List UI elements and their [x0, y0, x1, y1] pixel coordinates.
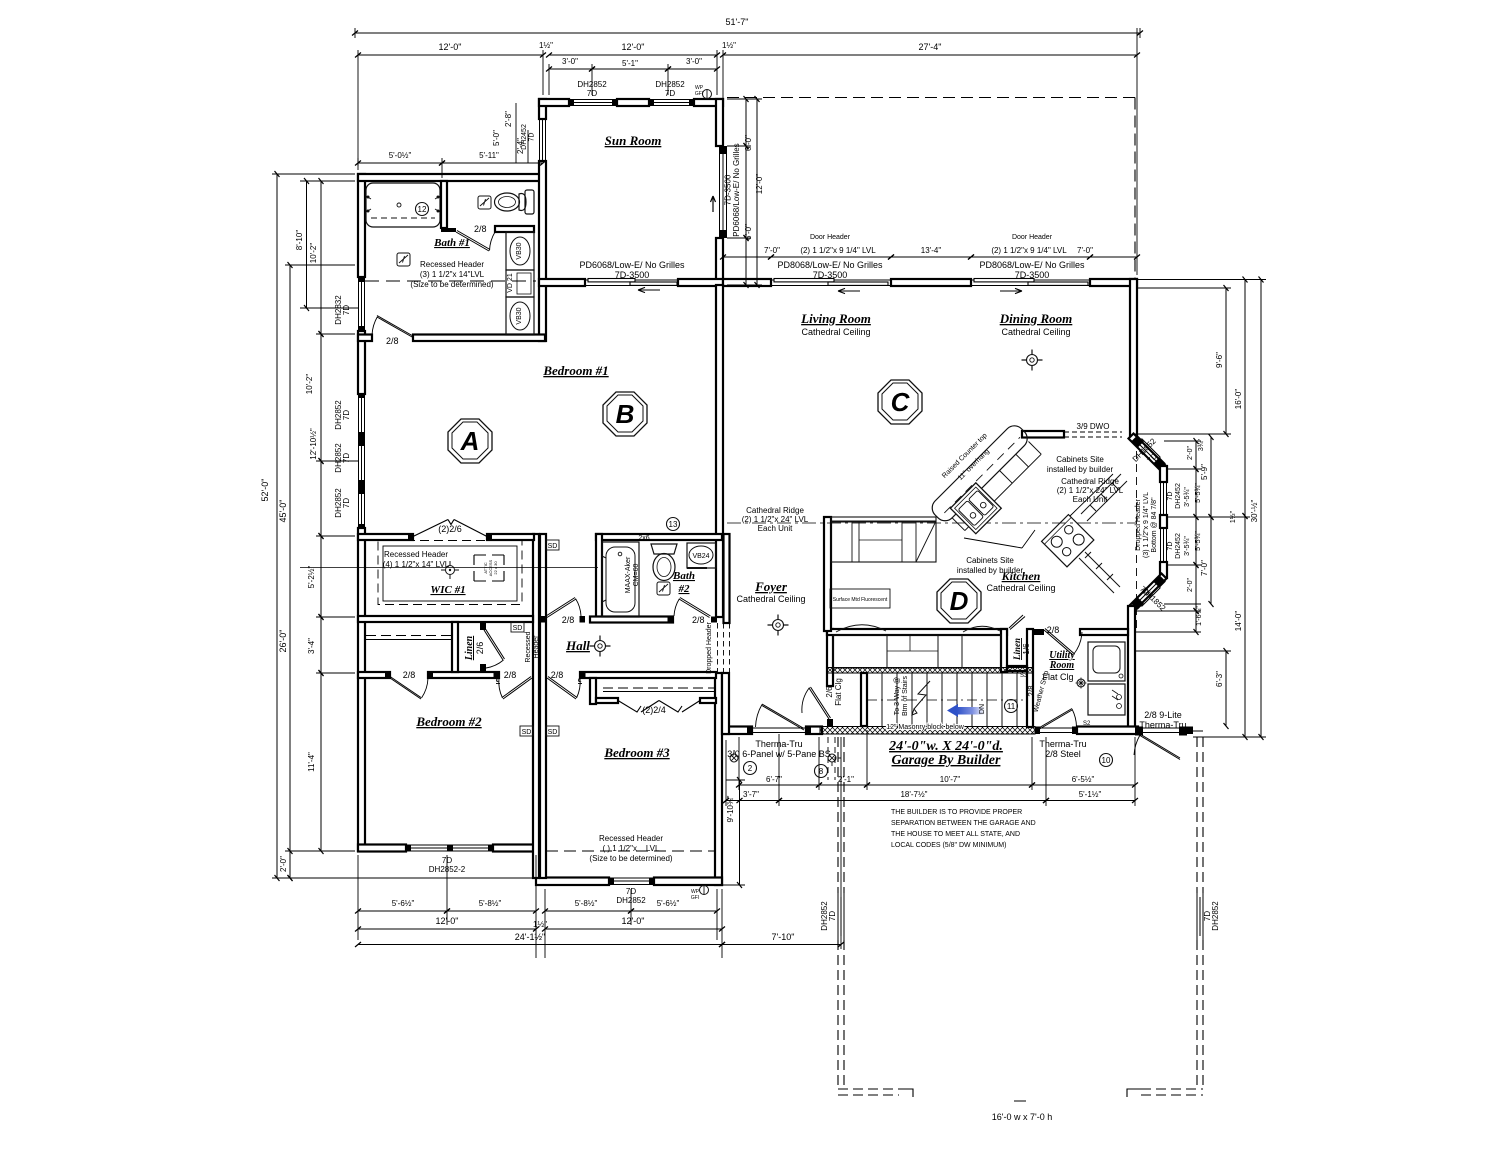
svg-text:9'-6": 9'-6"	[1215, 352, 1224, 368]
svg-text:C: C	[891, 387, 911, 417]
svg-text:2'-0": 2'-0"	[1187, 446, 1194, 460]
svg-text:Each Unit: Each Unit	[758, 524, 793, 533]
svg-text:7'-0": 7'-0"	[764, 246, 780, 255]
svg-text:(4) 1 1/2"x 14" LVL: (4) 1 1/2"x 14" LVL	[383, 560, 450, 569]
svg-text:VB30: VB30	[516, 242, 523, 259]
svg-text:11'-4": 11'-4"	[307, 752, 316, 772]
svg-text:Flat Clg: Flat Clg	[834, 678, 843, 706]
svg-text:THE BUILDER IS TO PROVIDE PROP: THE BUILDER IS TO PROVIDE PROPER	[891, 809, 1022, 816]
svg-text:THE HOUSE TO MEET ALL STATE, A: THE HOUSE TO MEET ALL STATE, AND	[891, 831, 1020, 838]
svg-text:Bedroom #3: Bedroom #3	[603, 745, 670, 760]
svg-text:26'-0": 26'-0"	[278, 630, 288, 653]
svg-text:7D-3500: 7D-3500	[615, 270, 650, 280]
svg-text:12'-10½": 12'-10½"	[309, 428, 318, 460]
svg-text:5'-5¾": 5'-5¾"	[1195, 483, 1202, 503]
svg-text:3/0 6-Panel w/ 5-Pane BS: 3/0 6-Panel w/ 5-Pane BS	[727, 749, 831, 759]
svg-text:DH2852: DH2852	[1211, 901, 1220, 931]
svg-text:DH2852-2: DH2852-2	[429, 865, 466, 874]
svg-text:(3) 1 1/2"x 14"LVL: (3) 1 1/2"x 14"LVL	[420, 270, 485, 279]
svg-text:(2)2/4: (2)2/4	[642, 705, 666, 715]
svg-text:5'-6½": 5'-6½"	[657, 899, 680, 908]
svg-text:7D: 7D	[1167, 542, 1174, 551]
svg-text:S3: S3	[1020, 673, 1028, 679]
svg-text:Sun Room: Sun Room	[605, 133, 662, 148]
svg-text:2'-0": 2'-0"	[279, 856, 288, 872]
svg-text:11: 11	[1007, 702, 1016, 711]
svg-text:Living Room: Living Room	[800, 311, 871, 326]
svg-text:DH2452: DH2452	[1175, 483, 1182, 509]
svg-text:Therma-Tru: Therma-Tru	[1139, 720, 1186, 730]
svg-text:22 x 30: 22 x 30	[493, 561, 498, 575]
svg-text:3¾": 3¾"	[1198, 438, 1205, 451]
svg-text:Hall: Hall	[565, 638, 590, 653]
svg-text:Dropped Header: Dropped Header	[706, 621, 713, 673]
svg-text:9'-10¾": 9'-10¾"	[726, 795, 735, 822]
svg-text:Cathedral Ridge: Cathedral Ridge	[746, 506, 804, 515]
svg-text:5'-0": 5'-0"	[492, 130, 501, 146]
svg-text:6'-0": 6'-0"	[744, 224, 753, 240]
svg-text:2/8: 2/8	[504, 670, 517, 680]
svg-text:5'-8½": 5'-8½"	[479, 899, 502, 908]
svg-text:D: D	[950, 586, 969, 616]
svg-text:(3) 1 1/2"x 9 1/4" LVL: (3) 1 1/2"x 9 1/4" LVL	[1143, 492, 1150, 558]
svg-text:(2) 1 1/2"x 9 1/4" LVL: (2) 1 1/2"x 9 1/4" LVL	[800, 246, 876, 255]
svg-text:DH2852: DH2852	[577, 80, 607, 89]
svg-text:7D: 7D	[342, 410, 351, 420]
svg-text:1½": 1½"	[539, 41, 553, 50]
svg-text:2'-8": 2'-8"	[504, 111, 513, 127]
svg-text:CM=60: CM=60	[633, 564, 640, 587]
svg-text:DH2852: DH2852	[616, 896, 646, 905]
svg-text:installed by builder: installed by builder	[1047, 465, 1114, 474]
svg-text:B: B	[616, 399, 635, 429]
svg-text:PD8068/Low-E/ No Grilles: PD8068/Low-E/ No Grilles	[777, 260, 883, 270]
svg-text:12: 12	[418, 205, 427, 214]
svg-text:2/8: 2/8	[562, 615, 575, 625]
svg-text:12'-0": 12'-0"	[439, 42, 462, 52]
svg-text:6'-0": 6'-0"	[744, 135, 753, 151]
svg-text:Dining Room: Dining Room	[999, 311, 1073, 326]
svg-text:(2) 1 1/2"x 9 1/4" LVL: (2) 1 1/2"x 9 1/4" LVL	[991, 246, 1067, 255]
svg-text:PD6068/Low-E/ No Grilles: PD6068/Low-E/ No Grilles	[732, 143, 741, 236]
svg-text:MAAX-Aker: MAAX-Aker	[625, 556, 632, 593]
svg-text:Cabinets Site: Cabinets Site	[966, 556, 1014, 565]
svg-text:A: A	[460, 426, 480, 456]
svg-text:24'-0"w. X 24'-0"d.: 24'-0"w. X 24'-0"d.	[888, 739, 1003, 754]
svg-text:7D: 7D	[342, 498, 351, 508]
svg-text:Therma-Tru: Therma-Tru	[1039, 739, 1086, 749]
svg-text:7'-0": 7'-0"	[1200, 560, 1209, 576]
svg-text:3'-4": 3'-4"	[307, 638, 316, 654]
svg-text:Linen: Linen	[1012, 638, 1022, 661]
svg-text:(2)2/6: (2)2/6	[438, 524, 462, 534]
svg-text:GFI: GFI	[695, 91, 703, 97]
svg-text:13: 13	[669, 520, 678, 529]
svg-text:Linen: Linen	[464, 635, 475, 661]
svg-text:7D: 7D	[442, 856, 452, 865]
svg-text:30'-½": 30'-½"	[1250, 500, 1259, 523]
svg-text:c: c	[496, 674, 500, 684]
svg-text:6'-7": 6'-7"	[766, 775, 782, 784]
svg-text:5'-5¾": 5'-5¾"	[1195, 531, 1202, 551]
svg-text:45'-0": 45'-0"	[278, 500, 288, 523]
svg-text:PD8068/Low-E/ No Grilles: PD8068/Low-E/ No Grilles	[979, 260, 1085, 270]
svg-text:13'-4": 13'-4"	[921, 246, 942, 255]
svg-text:7D: 7D	[665, 89, 675, 98]
svg-text:16'-0": 16'-0"	[1234, 389, 1243, 410]
svg-text:#2: #2	[678, 583, 691, 595]
svg-text:Cathedral Ridge: Cathedral Ridge	[1061, 477, 1119, 486]
svg-text:7'-0": 7'-0"	[1077, 246, 1093, 255]
svg-text:Bedroom #2: Bedroom #2	[415, 714, 482, 729]
svg-text:2/8 9-Lite: 2/8 9-Lite	[1144, 710, 1182, 720]
svg-text:2: 2	[748, 764, 753, 773]
svg-text:(2) 1 1/2"x 24" LVL: (2) 1 1/2"x 24" LVL	[742, 515, 809, 524]
svg-text:18'-7½": 18'-7½"	[900, 790, 927, 799]
svg-text:(Size to be determined): (Size to be determined)	[589, 854, 672, 863]
svg-text:Recessed Header: Recessed Header	[599, 834, 663, 843]
svg-text:12'-0": 12'-0"	[436, 916, 459, 926]
svg-text:Cathedral Ceiling: Cathedral Ceiling	[801, 327, 870, 337]
svg-text:7D: 7D	[529, 133, 536, 142]
svg-text:VD 21: VD 21	[507, 273, 514, 293]
svg-text:2/6: 2/6	[475, 642, 485, 655]
svg-text:6'-3": 6'-3"	[1215, 671, 1224, 687]
svg-text:SD: SD	[513, 625, 523, 632]
svg-text:3'-5¾": 3'-5¾"	[1184, 487, 1191, 507]
svg-text:PD6068/Low-E/ No Grilles: PD6068/Low-E/ No Grilles	[579, 260, 685, 270]
svg-text:(2) 1 1/2"x 24" LVL: (2) 1 1/2"x 24" LVL	[1057, 486, 1124, 495]
svg-text:6'-5½": 6'-5½"	[1072, 775, 1095, 784]
svg-text:2/8: 2/8	[474, 224, 487, 234]
svg-text:( ) 1 1/2"x LVL: ( ) 1 1/2"x LVL	[603, 844, 660, 853]
svg-text:Therma-Tru: Therma-Tru	[755, 739, 802, 749]
svg-text:Cathedral Ceiling: Cathedral Ceiling	[736, 594, 805, 604]
svg-text:2/8: 2/8	[1027, 685, 1036, 697]
svg-text:2/8: 2/8	[692, 615, 705, 625]
svg-text:10'-2": 10'-2"	[305, 374, 314, 395]
svg-text:Recessed Header: Recessed Header	[384, 550, 448, 559]
svg-text:Foyer: Foyer	[754, 579, 788, 594]
svg-text:DH2852: DH2852	[655, 80, 685, 89]
svg-text:SD: SD	[522, 729, 532, 736]
svg-text:2'-0": 2'-0"	[1187, 578, 1194, 592]
svg-text:5'-9": 5'-9"	[1200, 464, 1209, 480]
svg-text:51'-7": 51'-7"	[726, 17, 749, 27]
svg-text:S2: S2	[1083, 721, 1091, 727]
svg-text:Surface Mtd Fluorescent: Surface Mtd Fluorescent	[833, 597, 888, 603]
svg-text:5'-2½": 5'-2½"	[307, 566, 316, 589]
svg-text:2/8: 2/8	[386, 336, 399, 346]
svg-text:7D: 7D	[626, 887, 636, 896]
svg-text:(Size to be determined): (Size to be determined)	[410, 280, 493, 289]
svg-text:Bottom @ 84 7/8": Bottom @ 84 7/8"	[1151, 497, 1158, 553]
svg-text:10'-7": 10'-7"	[940, 775, 961, 784]
svg-text:8'-10": 8'-10"	[295, 230, 304, 251]
svg-text:3'-7": 3'-7"	[743, 790, 759, 799]
svg-text:12'-0": 12'-0"	[622, 916, 645, 926]
svg-text:7D: 7D	[1167, 492, 1174, 501]
svg-text:Bath #1: Bath #1	[433, 237, 470, 249]
svg-text:5'-6½": 5'-6½"	[392, 899, 415, 908]
svg-text:2/8: 2/8	[403, 670, 416, 680]
svg-text:3/9 DWO: 3/9 DWO	[1077, 422, 1110, 431]
svg-text:Header: Header	[533, 635, 540, 659]
svg-text:2x6: 2x6	[638, 535, 649, 542]
svg-text:5'-11": 5'-11"	[479, 151, 499, 160]
svg-text:Recessed: Recessed	[525, 631, 532, 662]
svg-text:7D: 7D	[828, 911, 837, 921]
svg-text:5'-0½": 5'-0½"	[389, 151, 412, 160]
svg-text:WIC #1: WIC #1	[430, 584, 465, 596]
svg-text:1'-6¾": 1'-6¾"	[1196, 606, 1203, 626]
svg-text:12'-0": 12'-0"	[622, 42, 645, 52]
svg-text:1½": 1½"	[1229, 510, 1237, 523]
svg-text:7D: 7D	[342, 453, 351, 463]
svg-text:3'-5¾": 3'-5¾"	[1184, 536, 1191, 556]
svg-text:5'-8½": 5'-8½"	[575, 899, 598, 908]
svg-text:VB24: VB24	[692, 553, 709, 560]
svg-text:SD: SD	[548, 543, 558, 550]
svg-text:12'-0": 12'-0"	[755, 174, 764, 195]
svg-text:1½": 1½"	[722, 41, 736, 50]
svg-text:VB30: VB30	[516, 307, 523, 324]
svg-text:2/8: 2/8	[1047, 625, 1060, 635]
svg-text:5'-1½": 5'-1½"	[1079, 790, 1102, 799]
svg-text:7D: 7D	[342, 305, 351, 315]
svg-text:8: 8	[819, 767, 824, 776]
svg-text:To 3-Way @: To 3-Way @	[894, 677, 901, 715]
svg-text:2'-1": 2'-1"	[838, 775, 854, 784]
svg-text:c: c	[578, 674, 582, 684]
svg-text:DN: DN	[979, 704, 986, 714]
svg-text:2/8: 2/8	[551, 670, 564, 680]
svg-text:14'-0": 14'-0"	[1234, 611, 1243, 632]
svg-text:24'-1½": 24'-1½"	[515, 932, 545, 942]
svg-text:SD: SD	[548, 729, 558, 736]
svg-text:5'-1": 5'-1"	[622, 59, 638, 68]
svg-text:1/6: 1/6	[1022, 643, 1031, 655]
svg-text:DH2452: DH2452	[1175, 533, 1182, 559]
svg-text:Recessed Header: Recessed Header	[420, 260, 484, 269]
svg-text:GFI: GFI	[691, 895, 699, 901]
svg-text:7D-3500: 7D-3500	[1015, 270, 1050, 280]
svg-text:27'-4": 27'-4"	[919, 42, 942, 52]
svg-text:Cathedral Ceiling: Cathedral Ceiling	[1001, 327, 1070, 337]
svg-text:Btm of Stairs: Btm of Stairs	[902, 675, 909, 716]
svg-text:10: 10	[1102, 756, 1111, 765]
svg-text:3'-0": 3'-0"	[562, 57, 578, 66]
svg-text:SEPARATION BETWEEN THE GARAGE: SEPARATION BETWEEN THE GARAGE AND	[891, 820, 1036, 827]
svg-text:Bath: Bath	[672, 570, 695, 582]
svg-text:DH2452: DH2452	[521, 124, 528, 150]
svg-text:Garage By Builder: Garage By Builder	[892, 753, 1001, 768]
svg-text:LOCAL CODES (5/8" DW MINIMUM): LOCAL CODES (5/8" DW MINIMUM)	[891, 842, 1006, 849]
svg-text:Dropped Header: Dropped Header	[1135, 498, 1142, 550]
svg-text:2/6: 2/6	[825, 686, 834, 698]
svg-text:3'-0": 3'-0"	[686, 57, 702, 66]
svg-text:Cabinets Site: Cabinets Site	[1056, 455, 1104, 464]
svg-text:52'-0": 52'-0"	[260, 479, 270, 502]
svg-text:Door Header: Door Header	[1012, 234, 1053, 241]
svg-text:10'-2": 10'-2"	[309, 243, 318, 264]
svg-text:Room: Room	[1049, 660, 1075, 671]
svg-text:7D: 7D	[587, 89, 597, 98]
svg-text:Cathedral Ceiling: Cathedral Ceiling	[986, 583, 1055, 593]
svg-text:7'-10": 7'-10"	[772, 932, 795, 942]
svg-text:2/8 Steel: 2/8 Steel	[1045, 749, 1081, 759]
svg-text:1½": 1½"	[533, 920, 547, 929]
svg-text:Door Header: Door Header	[810, 234, 851, 241]
svg-text:12" Masonry block below: 12" Masonry block below	[886, 724, 965, 731]
svg-text:installed by builder: installed by builder	[957, 566, 1024, 575]
svg-text:Bedroom #1: Bedroom #1	[542, 363, 608, 378]
svg-text:16'-0 w x 7'-0 h: 16'-0 w x 7'-0 h	[992, 1112, 1052, 1122]
svg-text:7D-3500: 7D-3500	[813, 270, 848, 280]
